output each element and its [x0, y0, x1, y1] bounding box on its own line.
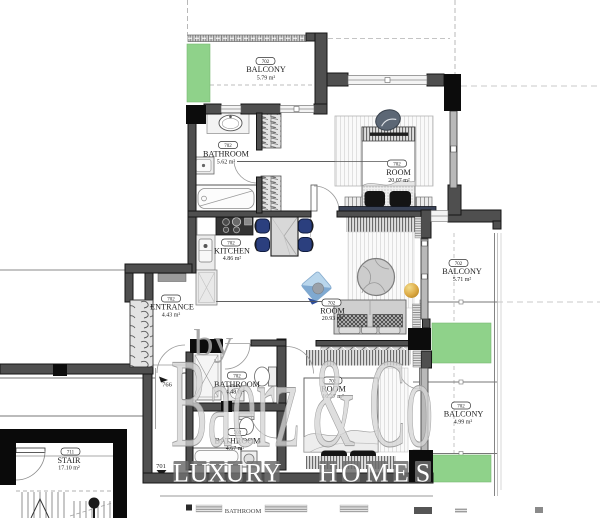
svg-text:ROOM: ROOM — [320, 307, 345, 316]
svg-text:702: 702 — [393, 163, 401, 168]
svg-text:KITCHEN: KITCHEN — [214, 247, 250, 256]
svg-text:ROOM: ROOM — [386, 168, 411, 177]
svg-text:5.71 m²: 5.71 m² — [453, 277, 472, 283]
svg-text:BALCONY: BALCONY — [442, 267, 482, 276]
svg-text:4.99 m²: 4.99 m² — [454, 420, 473, 426]
svg-text:20.07 m²: 20.07 m² — [388, 178, 410, 184]
svg-text:Baerz & Co: Baerz & Co — [171, 334, 433, 474]
svg-text:X: X — [208, 459, 227, 488]
svg-text:5.62 m²: 5.62 m² — [217, 160, 236, 166]
svg-text:M: M — [365, 459, 388, 488]
svg-text:H: H — [319, 459, 338, 488]
svg-text:BALCONY: BALCONY — [444, 410, 484, 419]
svg-text:R: R — [245, 459, 263, 488]
svg-text:20.93 m²: 20.93 m² — [322, 316, 344, 322]
svg-text:STAIR: STAIR — [58, 456, 82, 465]
svg-text:L: L — [173, 459, 189, 488]
svg-text:O: O — [342, 459, 361, 488]
svg-text:E: E — [393, 459, 409, 488]
svg-text:S: S — [416, 459, 430, 488]
svg-text:702: 702 — [224, 144, 232, 149]
svg-text:BALCONY: BALCONY — [246, 65, 286, 74]
svg-text:5.79 m²: 5.79 m² — [257, 76, 276, 82]
svg-text:BATHROOM: BATHROOM — [203, 150, 250, 159]
svg-text:U: U — [190, 459, 209, 488]
svg-text:711: 711 — [67, 451, 75, 456]
svg-text:Y: Y — [263, 459, 282, 488]
svg-text:4.43 m²: 4.43 m² — [162, 313, 181, 319]
svg-text:BATHROOM: BATHROOM — [225, 508, 262, 515]
svg-text:17.10 m²: 17.10 m² — [58, 466, 80, 472]
svg-text:4.86 m²: 4.86 m² — [223, 256, 242, 262]
svg-text:701: 701 — [156, 463, 166, 470]
svg-text:U: U — [226, 459, 245, 488]
svg-text:ENTRANCE: ENTRANCE — [150, 303, 194, 312]
